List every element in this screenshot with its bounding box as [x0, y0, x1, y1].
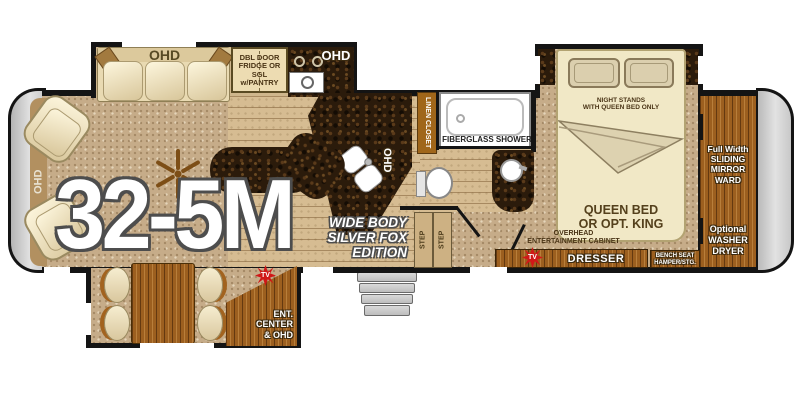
toilet-bowl: [425, 167, 453, 199]
ent-center-label: ENT. CENTER & OHD: [233, 309, 293, 341]
interior-step: STEP: [414, 212, 433, 268]
rear-cap: [756, 88, 794, 273]
tv-icon: TV: [522, 247, 543, 268]
wardrobe-door-notch: [698, 114, 703, 140]
bench-seat-label: BENCH SEAT HAMPER/STG.: [651, 253, 699, 266]
burner: [301, 76, 314, 89]
dinette-table: [131, 263, 195, 344]
interior-step: STEP: [433, 212, 452, 268]
shower-drain: [456, 114, 465, 123]
window: [140, 343, 214, 348]
wall-segment: [436, 92, 439, 150]
window: [698, 56, 703, 84]
dinette-chair: [104, 267, 130, 303]
bench-seat: BENCH SEAT HAMPER/STG.: [650, 250, 700, 268]
linen-closet-label: LINEN CLOSET: [418, 93, 436, 153]
wall-segment: [400, 206, 458, 210]
linen-closet: LINEN CLOSET: [417, 92, 437, 154]
vanity-sink: [500, 159, 523, 182]
pillow: [624, 58, 674, 88]
window: [122, 42, 196, 47]
sink-ohd-label: OHD: [379, 136, 395, 184]
dinette-chair: [197, 305, 223, 341]
wall-segment: [531, 92, 536, 152]
wardrobe-label: Full Width SLIDING MIRROR WARD: [700, 144, 756, 185]
bed: NIGHT STANDS WITH QUEEN BED ONLY QUEEN B…: [556, 49, 686, 242]
dinette-chair: [104, 305, 130, 341]
window: [303, 267, 333, 273]
shower: FIBERGLASS SHOWER: [439, 92, 531, 148]
wardrobe: Full Width SLIDING MIRROR WARD Optional …: [698, 94, 758, 269]
entry-step: [361, 294, 413, 304]
edition-label: WIDE BODY SILVER FOX EDITION: [295, 216, 407, 261]
dresser-label: DRESSER: [546, 253, 646, 265]
night-stands-label: NIGHT STANDS WITH QUEEN BED ONLY: [558, 97, 684, 112]
entry-step: [364, 305, 410, 316]
burner: [294, 56, 305, 67]
step-label: STEP: [434, 213, 451, 267]
pillow: [568, 58, 620, 88]
dresser: DRESSER: [495, 249, 648, 268]
entry-step: [359, 283, 415, 293]
range-ohd-label: OHD: [318, 49, 354, 64]
sofa-cushion: [103, 61, 143, 101]
sofa: OHD: [97, 47, 230, 102]
fridge-label: DBL DOOR FRIDGE OR SGL w/PANTRY: [233, 54, 286, 88]
entry-steps: [355, 272, 419, 318]
bed-fold: [558, 113, 684, 179]
window: [86, 303, 91, 335]
entry-step: [357, 272, 417, 282]
window: [535, 56, 540, 84]
window: [470, 267, 507, 273]
pillow-inner: [574, 63, 614, 83]
sofa-cushion: [187, 61, 227, 101]
rv-floorplan: OHD OHD DBL DOOR FRIDGE OR SGL w/PANTRY …: [0, 0, 800, 400]
night-stand: [538, 49, 555, 85]
model-number: 32-5M: [55, 168, 292, 261]
washer-dryer-label: Optional WASHER DRYER: [700, 224, 756, 256]
wall-segment: [437, 146, 533, 149]
refrigerator: DBL DOOR FRIDGE OR SGL w/PANTRY: [231, 47, 288, 93]
queen-bed-label: QUEEN BED OR OPT. KING: [558, 203, 684, 232]
shower-label: FIBERGLASS SHOWER: [437, 136, 537, 145]
step-label: STEP: [415, 213, 432, 267]
pillow-inner: [630, 63, 668, 83]
dinette-chair: [197, 267, 223, 303]
sofa-ohd-label: OHD: [98, 48, 231, 64]
overhead-cabinet-label: OVERHEAD ENTERTAINMENT CABINET: [476, 230, 671, 246]
sofa-cushion: [145, 61, 185, 101]
